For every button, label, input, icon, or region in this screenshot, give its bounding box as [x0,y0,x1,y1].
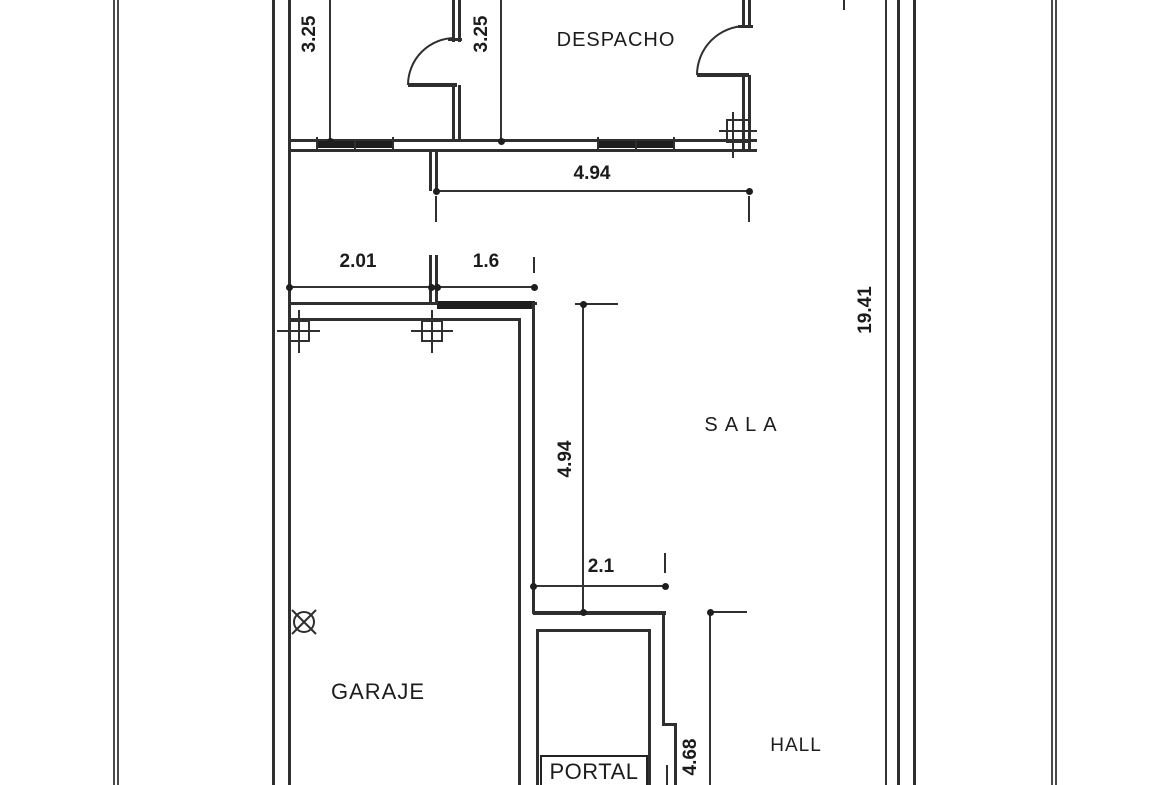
dimension-line [885,0,887,785]
window-tick [673,137,675,151]
dimension-tick [664,553,666,573]
dimension-extension [435,196,437,222]
dimension-dot [707,609,714,616]
boundary-line [113,0,115,785]
wall [458,0,461,42]
room-label-sala: SALA [697,413,784,437]
dim-label-plot-length: 19.41 [855,283,877,337]
wall [532,302,535,614]
dimension-line [500,0,502,142]
dimension-dot [580,609,587,616]
wall [435,151,438,191]
wall [533,611,666,615]
dimension-line [709,611,711,785]
dimension-line [436,190,750,192]
dimension-dot [434,284,441,291]
dimension-dot [662,583,669,590]
portal-label-box: PORTAL [540,755,648,785]
dimension-extension [748,196,750,222]
boundary-line [1055,0,1057,785]
dimension-line [289,286,536,288]
wall [674,723,677,785]
wall [435,255,438,304]
dimension-dot [498,138,505,145]
window-tick [635,139,637,149]
wall [288,149,757,152]
window-symbol [437,301,535,309]
room-label-hall: HALL [771,734,821,758]
wall [518,318,521,785]
dimension-dot [580,301,587,308]
room-label-despacho: DESPACHO [566,28,666,52]
column-symbol-icon [277,310,320,353]
wall [288,318,521,321]
dim-label-left-room-depth: 3.25 [299,8,321,60]
floor-plan: 3.25 3.25 4.94 2.01 1.6 19.41 4.94 2.1 4… [0,0,1170,785]
dim-label-garage-top-opening: 1.6 [461,251,511,273]
dimension-tick [288,262,290,276]
dimension-dot [327,138,334,145]
door-jamb [738,25,753,28]
room-label-portal: PORTAL [550,759,639,785]
wall [458,85,461,142]
boundary-line [117,0,119,785]
dim-label-sala-bottom-opening: 2.1 [571,556,631,578]
wall [662,614,665,725]
dim-label-hall-depth: 4.68 [680,731,702,783]
window-tick [392,137,394,151]
wall [897,0,900,785]
door-leaf [408,83,457,87]
door-swing-icon [408,38,455,85]
door-leaf [697,73,749,77]
dimension-dot [433,188,440,195]
wall [288,0,291,785]
wall [536,629,539,785]
dimension-dot [286,284,293,291]
dim-label-despacho-depth: 3.25 [471,8,493,60]
dimension-dot [530,583,537,590]
room-label-garaje: GARAJE [333,680,423,704]
wall [748,75,751,151]
door-swing-icon [697,26,746,75]
window-tick [316,137,318,151]
dimension-line [329,0,331,142]
window-tick [597,137,599,151]
dimension-tick [843,0,845,10]
door-jamb [448,38,462,41]
dim-label-garage-wall-length: 4.94 [555,433,577,485]
dimension-dot [746,188,753,195]
wall [429,151,432,191]
drain-symbol-icon [292,610,316,634]
wall [913,0,916,785]
wall [648,629,651,785]
window-tick [354,139,356,149]
dimension-dot [531,284,538,291]
dimension-line [533,585,667,587]
wall [748,0,751,28]
dim-label-garage-top-left: 2.01 [328,251,388,273]
wall [742,75,745,151]
dim-label-sala-top-width: 4.94 [562,163,622,185]
wall [452,85,455,142]
wall [429,255,432,304]
wall [742,0,745,28]
boundary-line [1051,0,1053,785]
dimension-tick [710,611,747,613]
wall [452,0,455,42]
wall [272,0,275,785]
column-symbol-icon [411,310,453,353]
wall [536,629,651,632]
dimension-tick [533,257,535,273]
door-jamb [666,765,668,785]
